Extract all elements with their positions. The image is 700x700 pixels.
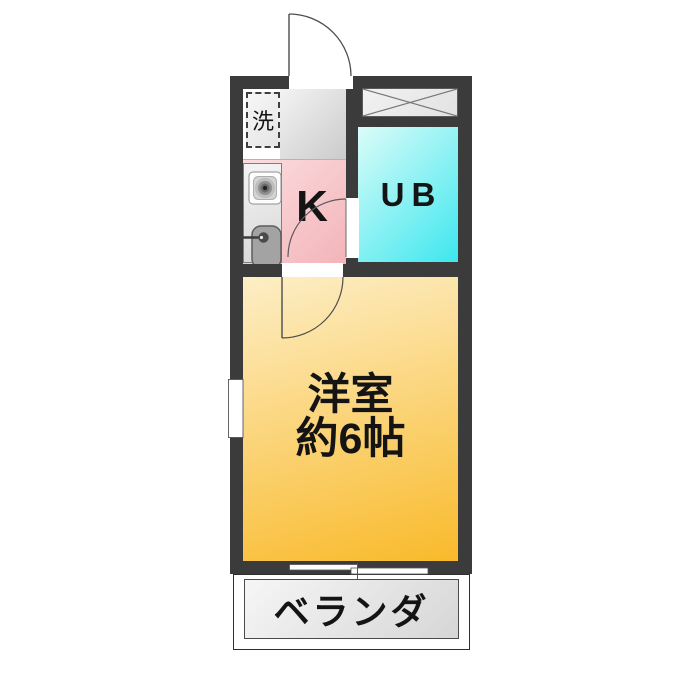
sink-icon bbox=[252, 226, 281, 264]
room-door-opening bbox=[282, 263, 343, 277]
kitchen-fixtures bbox=[244, 164, 283, 264]
veranda-label: ベランダ bbox=[273, 583, 429, 635]
unit-bath-label: UB bbox=[381, 176, 443, 214]
washing-machine-space: 洗 bbox=[246, 92, 280, 148]
room-label-line2: 約6帖 bbox=[243, 417, 458, 461]
room-label-line1: 洋室 bbox=[243, 373, 458, 417]
floorplan: 洗 K UB 洋室 約6帖 bbox=[230, 76, 472, 574]
veranda: ベランダ bbox=[233, 574, 470, 650]
entrance-door-arc bbox=[289, 14, 351, 76]
storage-crossbox bbox=[362, 88, 458, 117]
kitchen-counter bbox=[243, 163, 282, 263]
unit-bath: UB bbox=[358, 127, 458, 262]
cross-icon bbox=[363, 89, 457, 116]
bath-door-opening bbox=[346, 198, 359, 258]
entry-hall bbox=[280, 89, 346, 159]
kitchen-label: K bbox=[282, 185, 342, 229]
entrance-door-opening bbox=[289, 76, 353, 89]
veranda-inner: ベランダ bbox=[244, 579, 459, 639]
washer-label: 洗 bbox=[252, 104, 274, 136]
western-room: 洋室 約6帖 bbox=[243, 277, 458, 561]
room-label: 洋室 約6帖 bbox=[243, 373, 458, 461]
